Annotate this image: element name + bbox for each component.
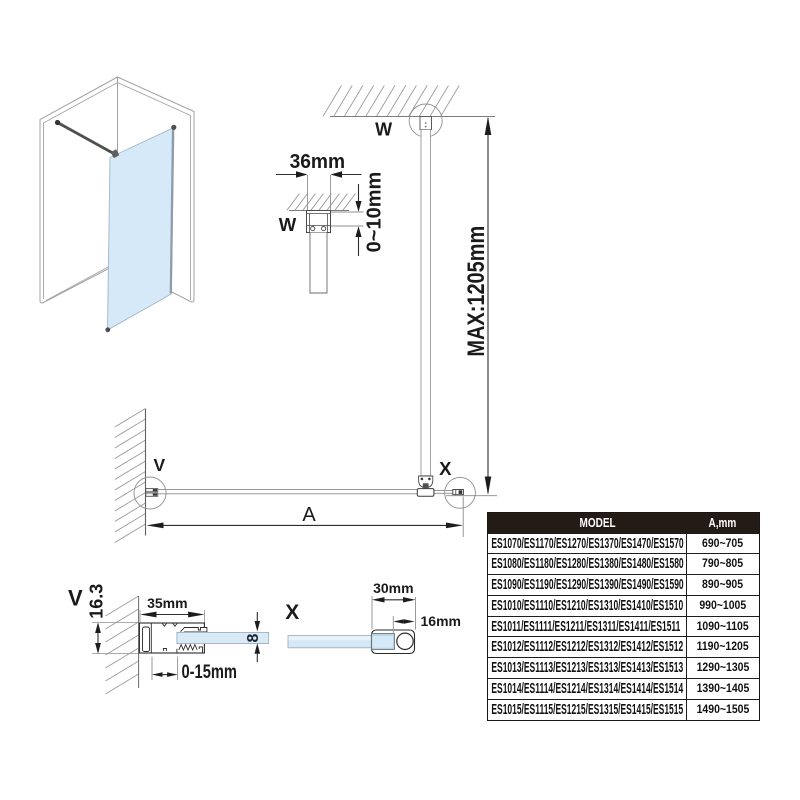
svg-text:35mm: 35mm (147, 595, 187, 611)
svg-text:V: V (154, 455, 166, 475)
svg-text:X: X (439, 458, 452, 479)
svg-text:16.3: 16.3 (87, 584, 107, 619)
svg-text:16mm: 16mm (421, 613, 461, 629)
svg-text:30mm: 30mm (373, 580, 413, 596)
svg-text:0~10mm: 0~10mm (364, 172, 386, 253)
svg-text:8: 8 (245, 633, 262, 642)
svg-text:V: V (68, 586, 83, 611)
svg-text:0-15mm: 0-15mm (182, 661, 237, 682)
svg-text:36mm: 36mm (290, 151, 345, 173)
svg-text:A: A (302, 504, 316, 526)
svg-text:W: W (279, 214, 297, 235)
svg-text:X: X (285, 601, 299, 624)
svg-text:W: W (375, 120, 392, 140)
svg-text:MAX:1205mm: MAX:1205mm (462, 226, 489, 357)
